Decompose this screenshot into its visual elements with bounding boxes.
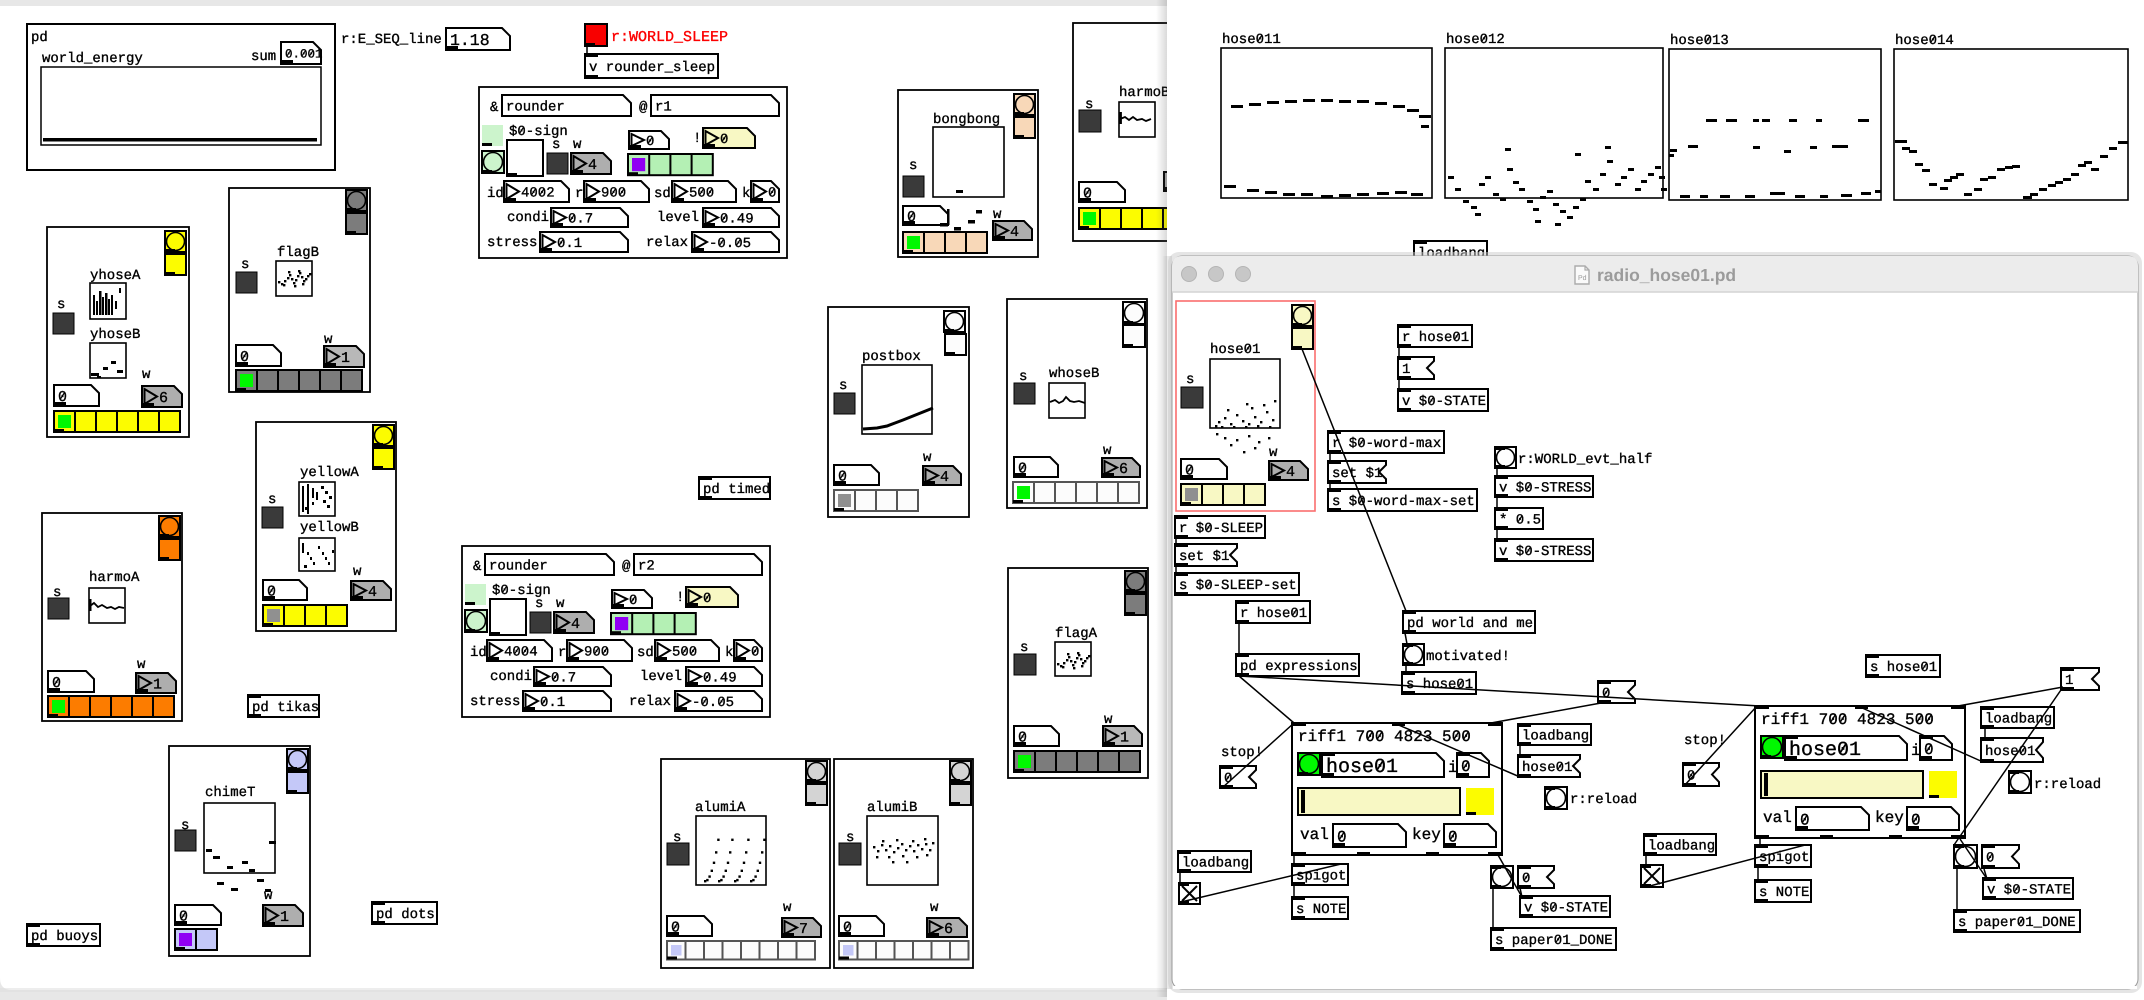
svg-text:key: key <box>1412 826 1441 844</box>
svg-text:4: 4 <box>588 157 597 174</box>
svg-text:stop!: stop! <box>1221 745 1263 761</box>
svg-text:k: k <box>725 645 733 661</box>
svg-text:loadbang: loadbang <box>1648 839 1715 855</box>
svg-text:hose01: hose01 <box>1985 744 2035 760</box>
svg-text:pd timed: pd timed <box>703 482 770 498</box>
svg-text:s $0-word-max-set: s $0-word-max-set <box>1332 494 1475 510</box>
svg-text:0: 0 <box>1018 729 1027 746</box>
svg-text:0: 0 <box>240 349 249 366</box>
svg-text:0: 0 <box>671 919 680 936</box>
svg-text:6: 6 <box>159 390 168 407</box>
svg-text:set $1: set $1 <box>1179 549 1229 565</box>
svg-text:w: w <box>573 137 582 153</box>
svg-text:1: 1 <box>1120 729 1129 746</box>
svg-text:1: 1 <box>280 909 289 926</box>
svg-text:hose01: hose01 <box>1522 760 1572 776</box>
svg-text:w: w <box>142 367 151 383</box>
svg-text:s $0-SLEEP-set: s $0-SLEEP-set <box>1179 578 1297 594</box>
svg-text:harmoA: harmoA <box>89 570 140 586</box>
svg-text:0.001: 0.001 <box>285 48 323 62</box>
svg-text:0: 0 <box>267 583 276 600</box>
svg-text:@: @ <box>622 559 631 575</box>
svg-text:0: 0 <box>1522 871 1530 887</box>
svg-text:k: k <box>742 186 750 202</box>
svg-text:0.49: 0.49 <box>703 671 737 687</box>
svg-text:0: 0 <box>1602 686 1610 702</box>
svg-text:w: w <box>264 888 273 904</box>
svg-text:motivated!: motivated! <box>1426 649 1510 665</box>
svg-text:hose011: hose011 <box>1222 32 1281 48</box>
svg-text:hose01: hose01 <box>1326 756 1398 779</box>
svg-text:s: s <box>909 158 917 174</box>
svg-text:4: 4 <box>1286 464 1295 481</box>
svg-text:val: val <box>1300 826 1329 844</box>
svg-text:yellowA: yellowA <box>300 465 359 481</box>
svg-text:pd expressions: pd expressions <box>1240 659 1358 675</box>
svg-text:s: s <box>241 257 249 273</box>
svg-text:0: 0 <box>838 468 847 485</box>
svg-text:relax: relax <box>629 694 671 710</box>
svg-text:w: w <box>923 450 932 466</box>
svg-text:w: w <box>930 900 939 916</box>
svg-text:bongbong: bongbong <box>933 112 1000 128</box>
svg-text:0: 0 <box>646 134 654 150</box>
svg-text:stress: stress <box>470 694 520 710</box>
svg-text:0: 0 <box>1448 828 1458 846</box>
svg-text:4: 4 <box>571 616 580 633</box>
svg-text:pd dots: pd dots <box>376 907 435 923</box>
svg-text:s paper01_DONE: s paper01_DONE <box>1495 933 1613 949</box>
svg-text:0: 0 <box>1018 460 1027 477</box>
svg-text:w: w <box>353 564 362 580</box>
svg-text:0: 0 <box>52 675 61 692</box>
svg-text:0: 0 <box>1911 811 1921 829</box>
svg-text:0: 0 <box>1986 851 1994 867</box>
svg-text:0: 0 <box>58 389 67 406</box>
svg-text:500: 500 <box>689 186 714 202</box>
svg-text:r2: r2 <box>638 559 655 575</box>
svg-text:0: 0 <box>751 645 759 661</box>
svg-text:1: 1 <box>341 350 350 367</box>
svg-text:riff1 700 4823 500: riff1 700 4823 500 <box>1298 728 1471 746</box>
svg-text:s: s <box>57 297 65 313</box>
svg-text:hose014: hose014 <box>1895 33 1954 49</box>
svg-text:6: 6 <box>1119 461 1128 478</box>
svg-text:alumiB: alumiB <box>867 800 917 816</box>
svg-text:pd: pd <box>31 30 48 46</box>
svg-text:yellowB: yellowB <box>300 520 359 536</box>
svg-text:whoseB: whoseB <box>1049 366 1099 382</box>
svg-text:w: w <box>1269 445 1278 461</box>
svg-text:1.18: 1.18 <box>450 31 490 50</box>
svg-text:r:WORLD_evt_half: r:WORLD_evt_half <box>1518 452 1652 468</box>
svg-text:!: ! <box>693 131 701 147</box>
svg-text:s: s <box>535 596 543 612</box>
svg-text:id: id <box>487 186 504 202</box>
svg-text:r:E_SEQ_line: r:E_SEQ_line <box>341 32 442 48</box>
svg-text:s hose01: s hose01 <box>1406 677 1473 693</box>
svg-text:stress: stress <box>487 235 537 251</box>
svg-text:v $0-STATE: v $0-STATE <box>1987 883 2071 899</box>
svg-text:0: 0 <box>1924 741 1934 759</box>
svg-text:0: 0 <box>703 591 711 607</box>
svg-text:spigot: spigot <box>1759 850 1809 866</box>
svg-text:r: r <box>575 186 583 202</box>
svg-text:rounder: rounder <box>506 100 565 116</box>
svg-text:500: 500 <box>672 645 697 661</box>
svg-text:v $0-STRESS: v $0-STRESS <box>1499 481 1591 497</box>
svg-text:flagA: flagA <box>1055 626 1098 642</box>
svg-text:w: w <box>783 900 792 916</box>
svg-text:set $1: set $1 <box>1332 466 1382 482</box>
svg-text:0: 0 <box>1800 811 1810 829</box>
svg-text:v $0-STATE: v $0-STATE <box>1402 394 1486 410</box>
svg-text:sd: sd <box>654 186 671 202</box>
svg-text:key: key <box>1875 809 1904 827</box>
svg-text:r:reload: r:reload <box>2034 777 2101 793</box>
svg-text:hose01: hose01 <box>1789 739 1861 762</box>
svg-text:id: id <box>470 645 487 661</box>
svg-text:900: 900 <box>601 186 626 202</box>
svg-text:r $0-word-max: r $0-word-max <box>1332 436 1441 452</box>
svg-text:1: 1 <box>2065 673 2073 689</box>
svg-text:loadbang: loadbang <box>1985 712 2052 728</box>
svg-text:yhoseB: yhoseB <box>90 327 140 343</box>
svg-text:s: s <box>1186 372 1194 388</box>
svg-text:r hose01: r hose01 <box>1240 606 1307 622</box>
svg-text:@: @ <box>639 100 648 116</box>
svg-text:-0.05: -0.05 <box>692 695 734 711</box>
svg-text:0: 0 <box>768 186 776 202</box>
svg-text:&: & <box>473 559 482 575</box>
svg-text:* 0.5: * 0.5 <box>1499 513 1541 529</box>
svg-text:rounder: rounder <box>489 559 548 575</box>
svg-text:r:reload: r:reload <box>1570 792 1637 808</box>
svg-text:4: 4 <box>940 469 949 486</box>
svg-text:pd buoys: pd buoys <box>31 929 98 945</box>
svg-text:chimeT: chimeT <box>205 785 255 801</box>
svg-text:w: w <box>137 657 146 673</box>
svg-text:riff1 700 4823 500: riff1 700 4823 500 <box>1761 711 1934 729</box>
svg-text:v $0-STRESS: v $0-STRESS <box>1499 544 1591 560</box>
svg-text:r1: r1 <box>655 100 672 116</box>
svg-text:level: level <box>640 669 682 685</box>
svg-text:s hose01: s hose01 <box>1870 660 1937 676</box>
svg-text:4004: 4004 <box>504 645 538 661</box>
svg-text:0: 0 <box>907 209 916 226</box>
svg-text:4: 4 <box>1010 224 1019 241</box>
svg-text:hose012: hose012 <box>1446 32 1505 48</box>
svg-text:postbox: postbox <box>862 349 921 365</box>
svg-text:r $0-SLEEP: r $0-SLEEP <box>1179 521 1263 537</box>
svg-text:s: s <box>268 492 276 508</box>
svg-text:4: 4 <box>368 584 377 601</box>
svg-text:0: 0 <box>1083 185 1092 202</box>
svg-text:spigot: spigot <box>1296 869 1346 885</box>
svg-text:&: & <box>490 100 499 116</box>
svg-text:sd: sd <box>637 645 654 661</box>
svg-text:7: 7 <box>799 921 808 938</box>
svg-text:0: 0 <box>1185 462 1194 479</box>
svg-text:6: 6 <box>944 921 953 938</box>
svg-text:yhoseA: yhoseA <box>90 268 141 284</box>
svg-text:s NOTE: s NOTE <box>1759 885 1809 901</box>
svg-text:r: r <box>558 645 566 661</box>
svg-text:alumiA: alumiA <box>695 800 746 816</box>
svg-text:0: 0 <box>1461 758 1471 776</box>
svg-text:0: 0 <box>1337 828 1347 846</box>
svg-text:Pd: Pd <box>1578 274 1587 282</box>
svg-text:pd world and me: pd world and me <box>1407 616 1533 632</box>
svg-text:level: level <box>657 210 699 226</box>
svg-text:4002: 4002 <box>521 186 555 202</box>
svg-text:s NOTE: s NOTE <box>1296 902 1346 918</box>
svg-text:radio_hose01.pd: radio_hose01.pd <box>1597 265 1736 285</box>
svg-text:loadbang: loadbang <box>1522 729 1589 745</box>
svg-text:pd tikas: pd tikas <box>252 700 319 716</box>
svg-text:-0.05: -0.05 <box>709 236 751 252</box>
svg-text:sum: sum <box>251 49 276 65</box>
svg-text:loadbang: loadbang <box>1182 856 1249 872</box>
svg-text:!: ! <box>676 590 684 606</box>
svg-text:1: 1 <box>153 676 162 693</box>
svg-text:0: 0 <box>629 593 637 609</box>
svg-text:hose013: hose013 <box>1670 33 1729 49</box>
svg-text:flagB: flagB <box>277 245 319 261</box>
svg-text:v rounder_sleep: v rounder_sleep <box>589 60 715 76</box>
svg-text:hose01: hose01 <box>1210 342 1260 358</box>
svg-text:condi: condi <box>507 210 549 226</box>
svg-text:1: 1 <box>1402 362 1410 378</box>
svg-text:v $0-STATE: v $0-STATE <box>1524 901 1608 917</box>
svg-text:0.49: 0.49 <box>720 212 754 228</box>
svg-text:condi: condi <box>490 669 532 685</box>
svg-text:val: val <box>1763 809 1792 827</box>
svg-text:s: s <box>839 378 847 394</box>
svg-text:w: w <box>556 596 565 612</box>
svg-text:s paper01_DONE: s paper01_DONE <box>1958 915 2076 931</box>
svg-text:r:WORLD_SLEEP: r:WORLD_SLEEP <box>611 29 728 46</box>
svg-text:0: 0 <box>843 919 852 936</box>
svg-text:0: 0 <box>720 132 728 148</box>
svg-text:world_energy: world_energy <box>42 51 143 67</box>
svg-text:s: s <box>552 137 560 153</box>
svg-text:900: 900 <box>584 645 609 661</box>
svg-text:r hose01: r hose01 <box>1402 330 1469 346</box>
svg-text:w: w <box>1103 443 1112 459</box>
svg-text:0: 0 <box>179 908 188 925</box>
svg-text:relax: relax <box>646 235 688 251</box>
